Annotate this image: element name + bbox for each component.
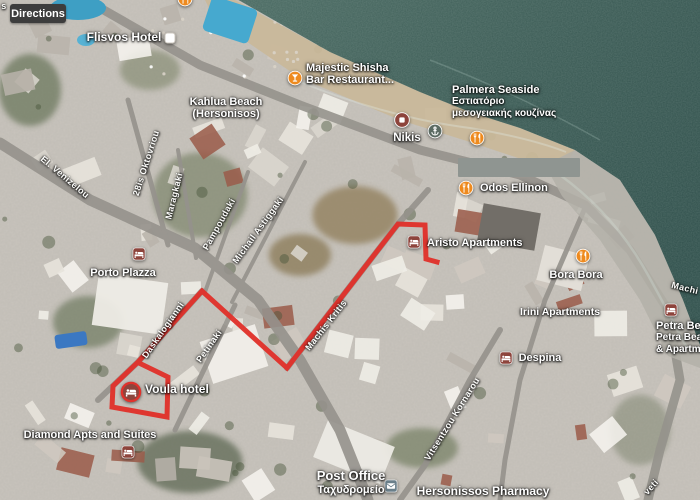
poi-odos-ellinon[interactable]: Odos Ellinon	[480, 182, 548, 194]
poi-label: Porto Plazza	[90, 267, 155, 279]
poi-label: Petra Bea	[656, 320, 700, 332]
poi-label: μεσογειακής κουζίνας	[452, 108, 556, 119]
poi-label: Post Office	[317, 469, 386, 484]
restaurant-icon[interactable]	[576, 249, 591, 264]
bar-icon[interactable]	[288, 71, 303, 86]
poi-label: Aristo Apartments	[427, 237, 523, 249]
anchor-poi-icon[interactable]	[428, 124, 443, 139]
lodging-icon[interactable]	[122, 446, 135, 459]
poi-label: Voula hotel	[145, 383, 209, 396]
redacted-label	[458, 158, 580, 177]
poi-aristo-apartments[interactable]: Aristo Apartments	[427, 237, 523, 249]
poi-nikis[interactable]: Nikis	[393, 132, 421, 145]
poi-label: Nikis	[393, 132, 421, 145]
white-square-icon[interactable]	[165, 33, 176, 44]
map-canvas[interactable]: Flisvos HotelMajestic ShishaBar Restaura…	[0, 0, 700, 500]
lodging-icon[interactable]	[408, 236, 421, 249]
poi-porto-plazza[interactable]: Porto Plazza	[90, 267, 155, 279]
poi-label: Εστιατόριο	[452, 96, 556, 107]
restaurant-icon[interactable]	[459, 181, 474, 196]
street-label-s: s	[1, 1, 6, 11]
poi-label: & Apartmen	[656, 344, 700, 355]
poi-petra-beach-apartments[interactable]: Petra BeaPetra Beach& Apartmen	[656, 320, 700, 355]
restaurant-icon[interactable]	[178, 0, 193, 7]
poi-label: Irini Apartments	[520, 307, 600, 319]
lodging-icon[interactable]	[500, 352, 513, 365]
poi-diamond-apts-and-suites[interactable]: Diamond Apts and Suites	[24, 429, 157, 441]
poi-label: Majestic Shisha	[306, 62, 394, 74]
poi-post-office[interactable]: Post OfficeΤαχυδρομείο	[317, 469, 386, 496]
poi-label: Odos Ellinon	[480, 182, 548, 194]
poi-label: Diamond Apts and Suites	[24, 429, 157, 441]
restaurant-icon[interactable]	[470, 131, 485, 146]
poi-label: Flisvos Hotel	[87, 31, 162, 44]
poi-label: Despina	[519, 352, 562, 364]
directions-button[interactable]: Directions	[10, 4, 66, 23]
poi-hersonissos-pharmacy[interactable]: Hersonissos Pharmacy	[417, 485, 550, 498]
poi-label: Kahlua Beach	[190, 96, 263, 108]
poi-label: Bar Restaurant...	[306, 74, 394, 86]
poi-label: (Hersonisos)	[190, 108, 263, 120]
lodging-icon[interactable]	[133, 248, 146, 261]
poi-bora-bora[interactable]: Bora Bora	[549, 269, 602, 281]
lodging-highlight-icon[interactable]	[121, 382, 142, 403]
post-office-icon[interactable]	[385, 480, 398, 493]
poi-despina[interactable]: Despina	[519, 352, 562, 364]
poi-majestic-shisha-bar[interactable]: Majestic ShishaBar Restaurant...	[306, 62, 394, 87]
poi-label: Ταχυδρομείο	[317, 484, 386, 496]
poi-voula-hotel[interactable]: Voula hotel	[145, 383, 209, 396]
poi-label: Palmera Seaside	[452, 84, 556, 96]
poi-label: Petra Beach	[656, 332, 700, 343]
poi-irini-apartments[interactable]: Irini Apartments	[520, 307, 600, 319]
lodging-icon[interactable]	[665, 304, 678, 317]
poi-label: Bora Bora	[549, 269, 602, 281]
poi-flisvos-hotel[interactable]: Flisvos Hotel	[87, 31, 162, 44]
poi-palmera-seaside[interactable]: Palmera SeasideΕστιατόριομεσογειακής κου…	[452, 84, 556, 119]
poi-kahlua-beach[interactable]: Kahlua Beach(Hersonisos)	[190, 96, 263, 121]
generic-poi-icon[interactable]	[394, 112, 410, 128]
poi-label: Hersonissos Pharmacy	[417, 485, 550, 498]
